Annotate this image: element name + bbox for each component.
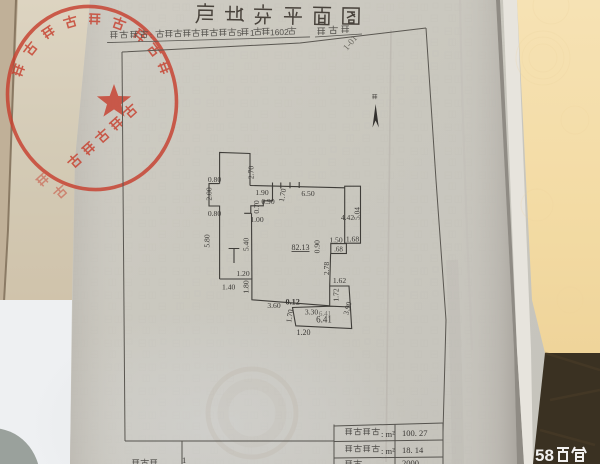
- svg-text:: m²: : m²: [381, 446, 395, 456]
- svg-text:100. 27: 100. 27: [402, 428, 428, 438]
- svg-text:: m²: : m²: [381, 429, 395, 439]
- svg-text:1.80: 1.80: [242, 280, 251, 293]
- svg-text:58: 58: [535, 446, 554, 464]
- svg-text:2.78: 2.78: [322, 262, 331, 275]
- svg-text:6.41: 6.41: [316, 315, 332, 325]
- svg-text:1.72: 1.72: [332, 288, 341, 301]
- svg-text:2.70: 2.70: [247, 166, 256, 179]
- svg-text:3.60: 3.60: [267, 301, 280, 310]
- svg-text:1: 1: [182, 455, 186, 464]
- svg-text:5.04: 5.04: [353, 207, 362, 220]
- svg-text:0.90: 0.90: [313, 240, 322, 253]
- svg-text:1.40: 1.40: [222, 283, 235, 292]
- svg-text:1.68: 1.68: [346, 235, 359, 244]
- svg-text:5.40: 5.40: [242, 238, 251, 251]
- svg-text:1.20: 1.20: [236, 269, 249, 278]
- svg-text:5: 5: [237, 28, 242, 38]
- svg-text:2000: 2000: [402, 458, 419, 464]
- svg-text:1.90: 1.90: [255, 188, 268, 197]
- svg-text:.68: .68: [334, 246, 343, 254]
- svg-text:18. 14: 18. 14: [402, 445, 424, 455]
- svg-text:6.50: 6.50: [301, 189, 314, 198]
- svg-text:0.12: 0.12: [286, 298, 300, 307]
- svg-text:0.70: 0.70: [252, 200, 261, 213]
- svg-text:0.80: 0.80: [208, 175, 221, 184]
- svg-text:0.80: 0.80: [208, 209, 221, 218]
- svg-text:1.62: 1.62: [333, 276, 346, 285]
- svg-text:2.00: 2.00: [205, 187, 214, 200]
- svg-text:1.20: 1.20: [297, 328, 311, 337]
- svg-text:0.90: 0.90: [261, 197, 274, 206]
- svg-text::: :: [150, 31, 152, 40]
- svg-text:1.00: 1.00: [250, 215, 263, 224]
- svg-text:1602: 1602: [270, 27, 289, 37]
- svg-text:82.13: 82.13: [292, 243, 310, 252]
- svg-text:5.80: 5.80: [203, 234, 212, 247]
- svg-text:1.50: 1.50: [329, 236, 342, 245]
